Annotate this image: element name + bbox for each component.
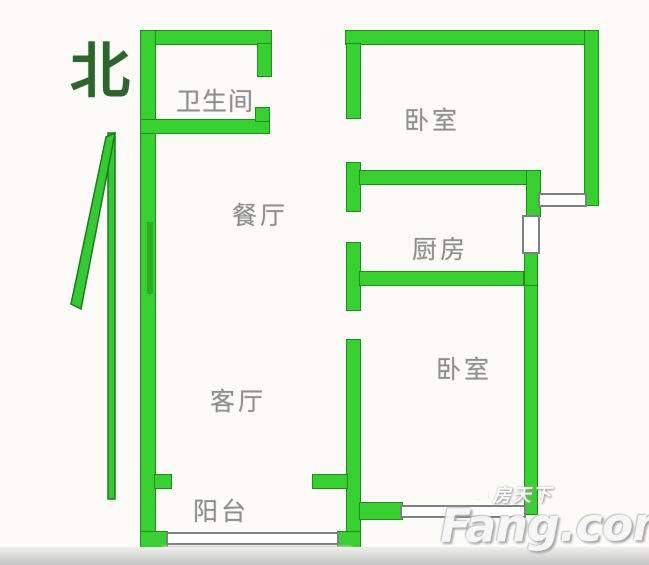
room-label-bathroom: 卫生间 [176,82,254,118]
wall-bedroom2-bottom [359,502,403,520]
wall-right-exterior [584,30,599,206]
wall-bathroom-right-stub [257,43,272,77]
room-label-dining: 餐厅 [232,196,288,232]
north-compass-label: 北 [70,42,130,102]
window-bedroom-top-south [538,193,587,207]
floor-plan: 北 卫生间 卧室 餐厅 厨房 卧室 客厅 阳台 房天下 Fang.com [0,0,649,565]
north-arrow-icon [60,125,130,510]
wall-balcony-stub-right [312,474,348,489]
wall-top-bathroom [140,30,272,45]
wall-bathroom-bottom [140,119,270,134]
wall-kitchen-right-lower [524,252,538,287]
wall-top-bedroom [345,30,599,45]
wall-kitchen-top [359,170,529,185]
room-label-bedroom-top: 卧室 [404,101,460,137]
watermark-fang-logo: 房天下 Fang.com [440,483,649,549]
room-label-balcony: 阳台 [193,492,249,528]
watermark-brand-en: Fang.com [440,503,649,549]
window-kitchen-east [522,215,540,254]
wall-kitchen-bottom [359,271,524,286]
wall-bathroom-door-stub [255,107,270,122]
wall-center-seg-a [346,43,361,119]
window-balcony-south [166,532,339,545]
wall-balcony-stub-left [154,474,172,489]
fang-flag-icon [474,489,489,500]
room-label-bedroom-bottom: 卧室 [436,350,492,386]
wall-left-window-hint [147,222,153,294]
room-label-living: 客厅 [210,382,266,418]
room-label-kitchen: 厨房 [412,230,468,266]
